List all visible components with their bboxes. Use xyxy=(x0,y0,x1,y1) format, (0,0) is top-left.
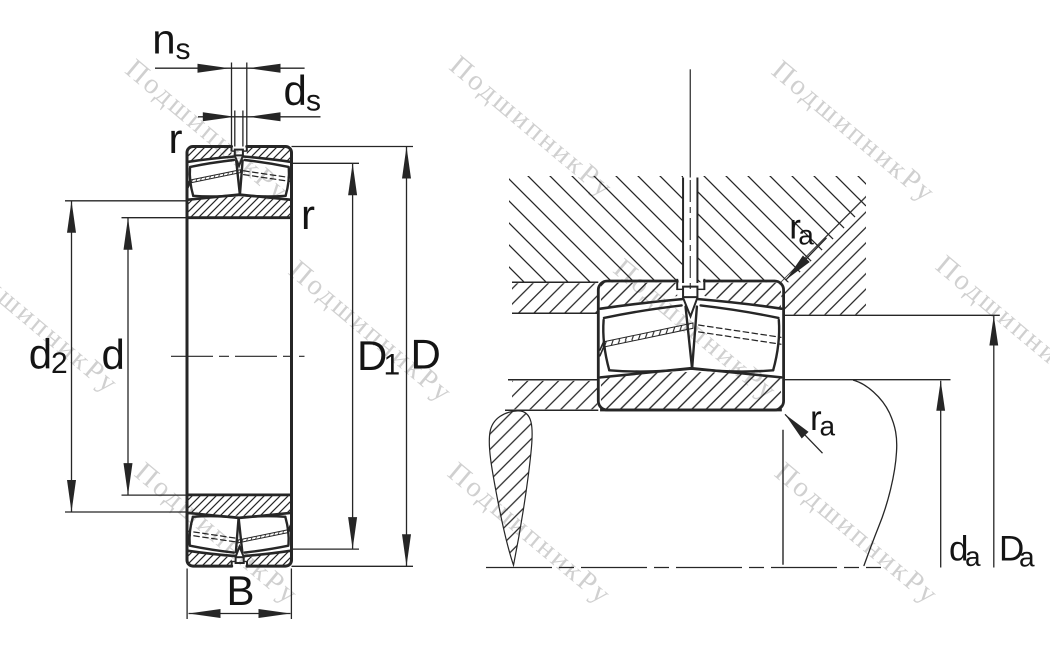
svg-text:1: 1 xyxy=(384,349,401,382)
svg-text:d: d xyxy=(284,67,307,114)
svg-text:2: 2 xyxy=(51,347,68,380)
svg-text:B: B xyxy=(227,567,255,614)
svg-text:d: d xyxy=(29,331,52,378)
svg-text:s: s xyxy=(176,33,191,66)
svg-text:r: r xyxy=(169,115,183,162)
svg-text:a: a xyxy=(1019,542,1035,573)
svg-text:n: n xyxy=(152,15,175,62)
svg-text:d: d xyxy=(102,331,125,378)
svg-text:a: a xyxy=(798,219,814,250)
svg-text:a: a xyxy=(820,411,836,442)
svg-text:r: r xyxy=(301,191,315,238)
svg-text:s: s xyxy=(306,85,321,118)
svg-text:a: a xyxy=(965,541,981,572)
svg-text:D: D xyxy=(411,331,441,378)
